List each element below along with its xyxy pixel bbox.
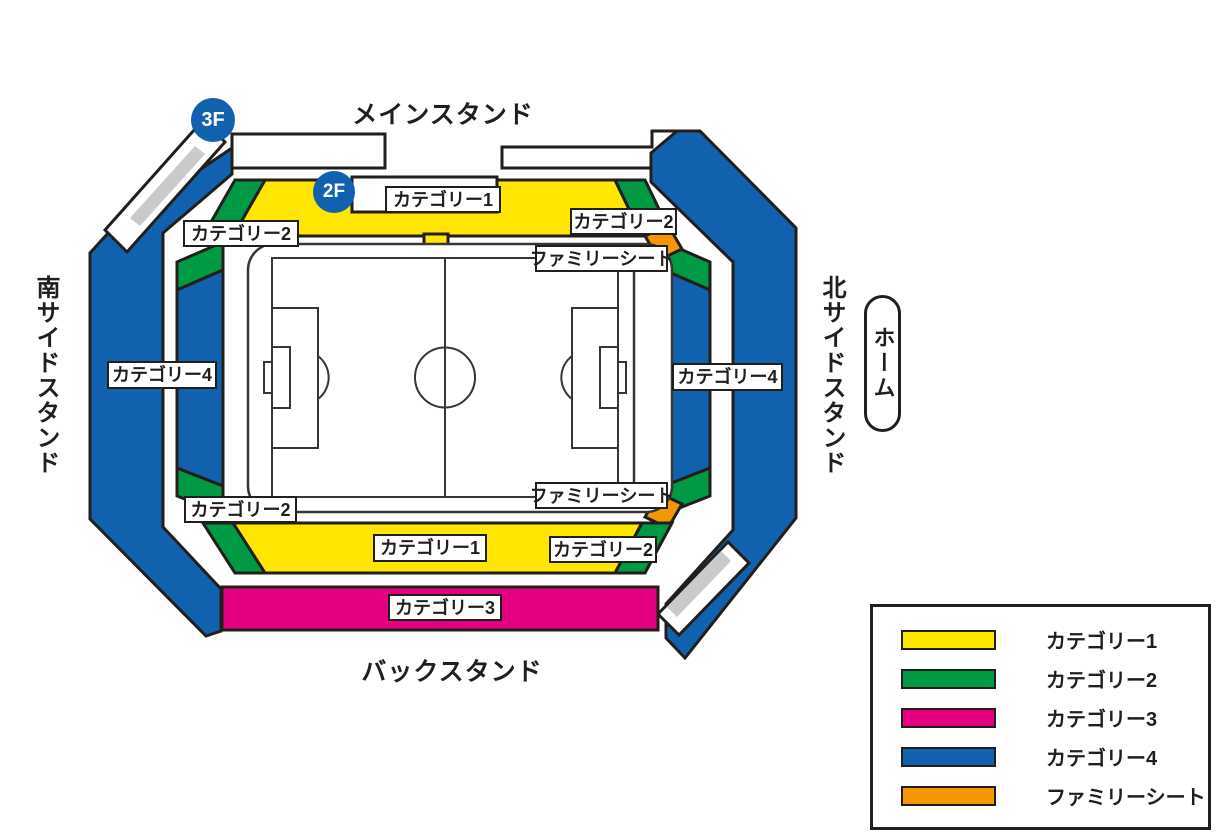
legend-swatch-category2 bbox=[901, 669, 996, 689]
goal-area-left bbox=[272, 347, 290, 408]
legend-label-category3: カテゴリー3 bbox=[1046, 703, 1157, 732]
section-label-family-seat-bottom: ファミリーシート bbox=[535, 482, 668, 509]
legend-label-family_seat: ファミリーシート bbox=[1046, 781, 1206, 810]
section-label-category4-right: カテゴリー4 bbox=[672, 363, 783, 391]
legend-swatch-family_seat bbox=[901, 786, 996, 806]
legend-items: カテゴリー1カテゴリー2カテゴリー3カテゴリー4ファミリーシート bbox=[873, 620, 1208, 815]
section-label-category2-bottomright: カテゴリー2 bbox=[549, 536, 657, 563]
legend-row-category3: カテゴリー3 bbox=[873, 698, 1208, 737]
legend-row-category1: カテゴリー1 bbox=[873, 620, 1208, 659]
section-label-category1-top: カテゴリー1 bbox=[385, 186, 501, 213]
legend-label-category1: カテゴリー1 bbox=[1046, 625, 1157, 654]
floor-badge-3f: 3F bbox=[191, 98, 235, 142]
legend-row-category2: カテゴリー2 bbox=[873, 659, 1208, 698]
section-label-category2-topleft: カテゴリー2 bbox=[183, 220, 299, 247]
legend-row-family_seat: ファミリーシート bbox=[873, 776, 1208, 815]
legend-label-category2: カテゴリー2 bbox=[1046, 664, 1157, 693]
section-label-category1-bottom: カテゴリー1 bbox=[373, 534, 487, 562]
legend-row-category4: カテゴリー4 bbox=[873, 737, 1208, 776]
section-label-category3: カテゴリー3 bbox=[388, 594, 502, 621]
legend-swatch-category4 bbox=[901, 747, 996, 767]
floor-badge-2f: 2F bbox=[313, 171, 355, 213]
section-label-category2-bottomleft: カテゴリー2 bbox=[184, 496, 297, 523]
section-label-family-seat-top: ファミリーシート bbox=[535, 245, 668, 272]
main-stand-3f-tier-left bbox=[232, 134, 385, 168]
goal-left bbox=[264, 362, 272, 393]
legend: カテゴリー1カテゴリー2カテゴリー3カテゴリー4ファミリーシート bbox=[870, 604, 1211, 830]
section-label-category4-left: カテゴリー4 bbox=[107, 361, 217, 389]
stadium-seating-map: メインスタンド バックスタンド 南サイドスタンド 北サイドスタンド ホーム 3F… bbox=[0, 0, 1220, 838]
back-stand-title: バックスタンド bbox=[332, 652, 572, 688]
home-end-badge-label: ホーム bbox=[872, 326, 894, 401]
south-side-stand-title: 南サイドスタンド bbox=[33, 275, 57, 475]
goal-area-right bbox=[600, 347, 618, 408]
legend-swatch-category3 bbox=[901, 708, 996, 728]
main-stand-title: メインスタンド bbox=[323, 95, 563, 131]
section-label-category2-topright: カテゴリー2 bbox=[570, 208, 677, 235]
legend-label-category4: カテゴリー4 bbox=[1046, 742, 1157, 771]
legend-swatch-category1 bbox=[901, 630, 996, 650]
goal-right bbox=[618, 362, 626, 393]
home-end-badge: ホーム bbox=[864, 295, 901, 432]
north-side-stand-title: 北サイドスタンド bbox=[819, 275, 843, 475]
